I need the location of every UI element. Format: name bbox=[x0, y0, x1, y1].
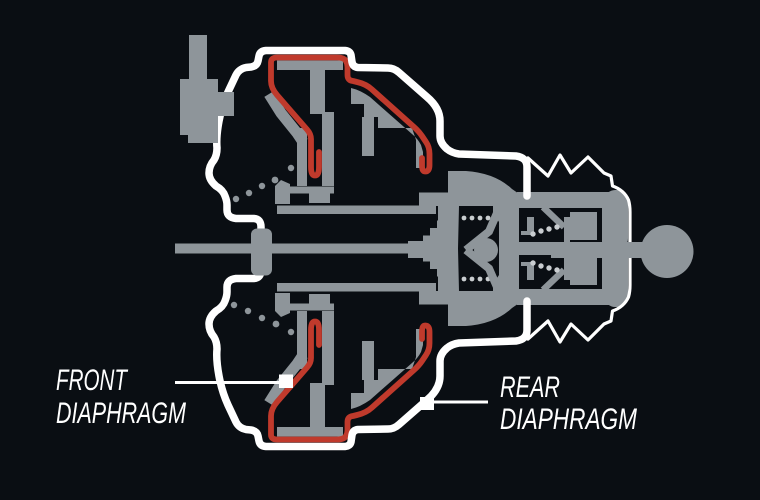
svg-text:DIAPHRAGM: DIAPHRAGM bbox=[500, 403, 637, 436]
svg-text:FRONT: FRONT bbox=[56, 364, 129, 397]
svg-text:REAR: REAR bbox=[500, 371, 560, 404]
svg-text:DIAPHRAGM: DIAPHRAGM bbox=[56, 397, 186, 430]
